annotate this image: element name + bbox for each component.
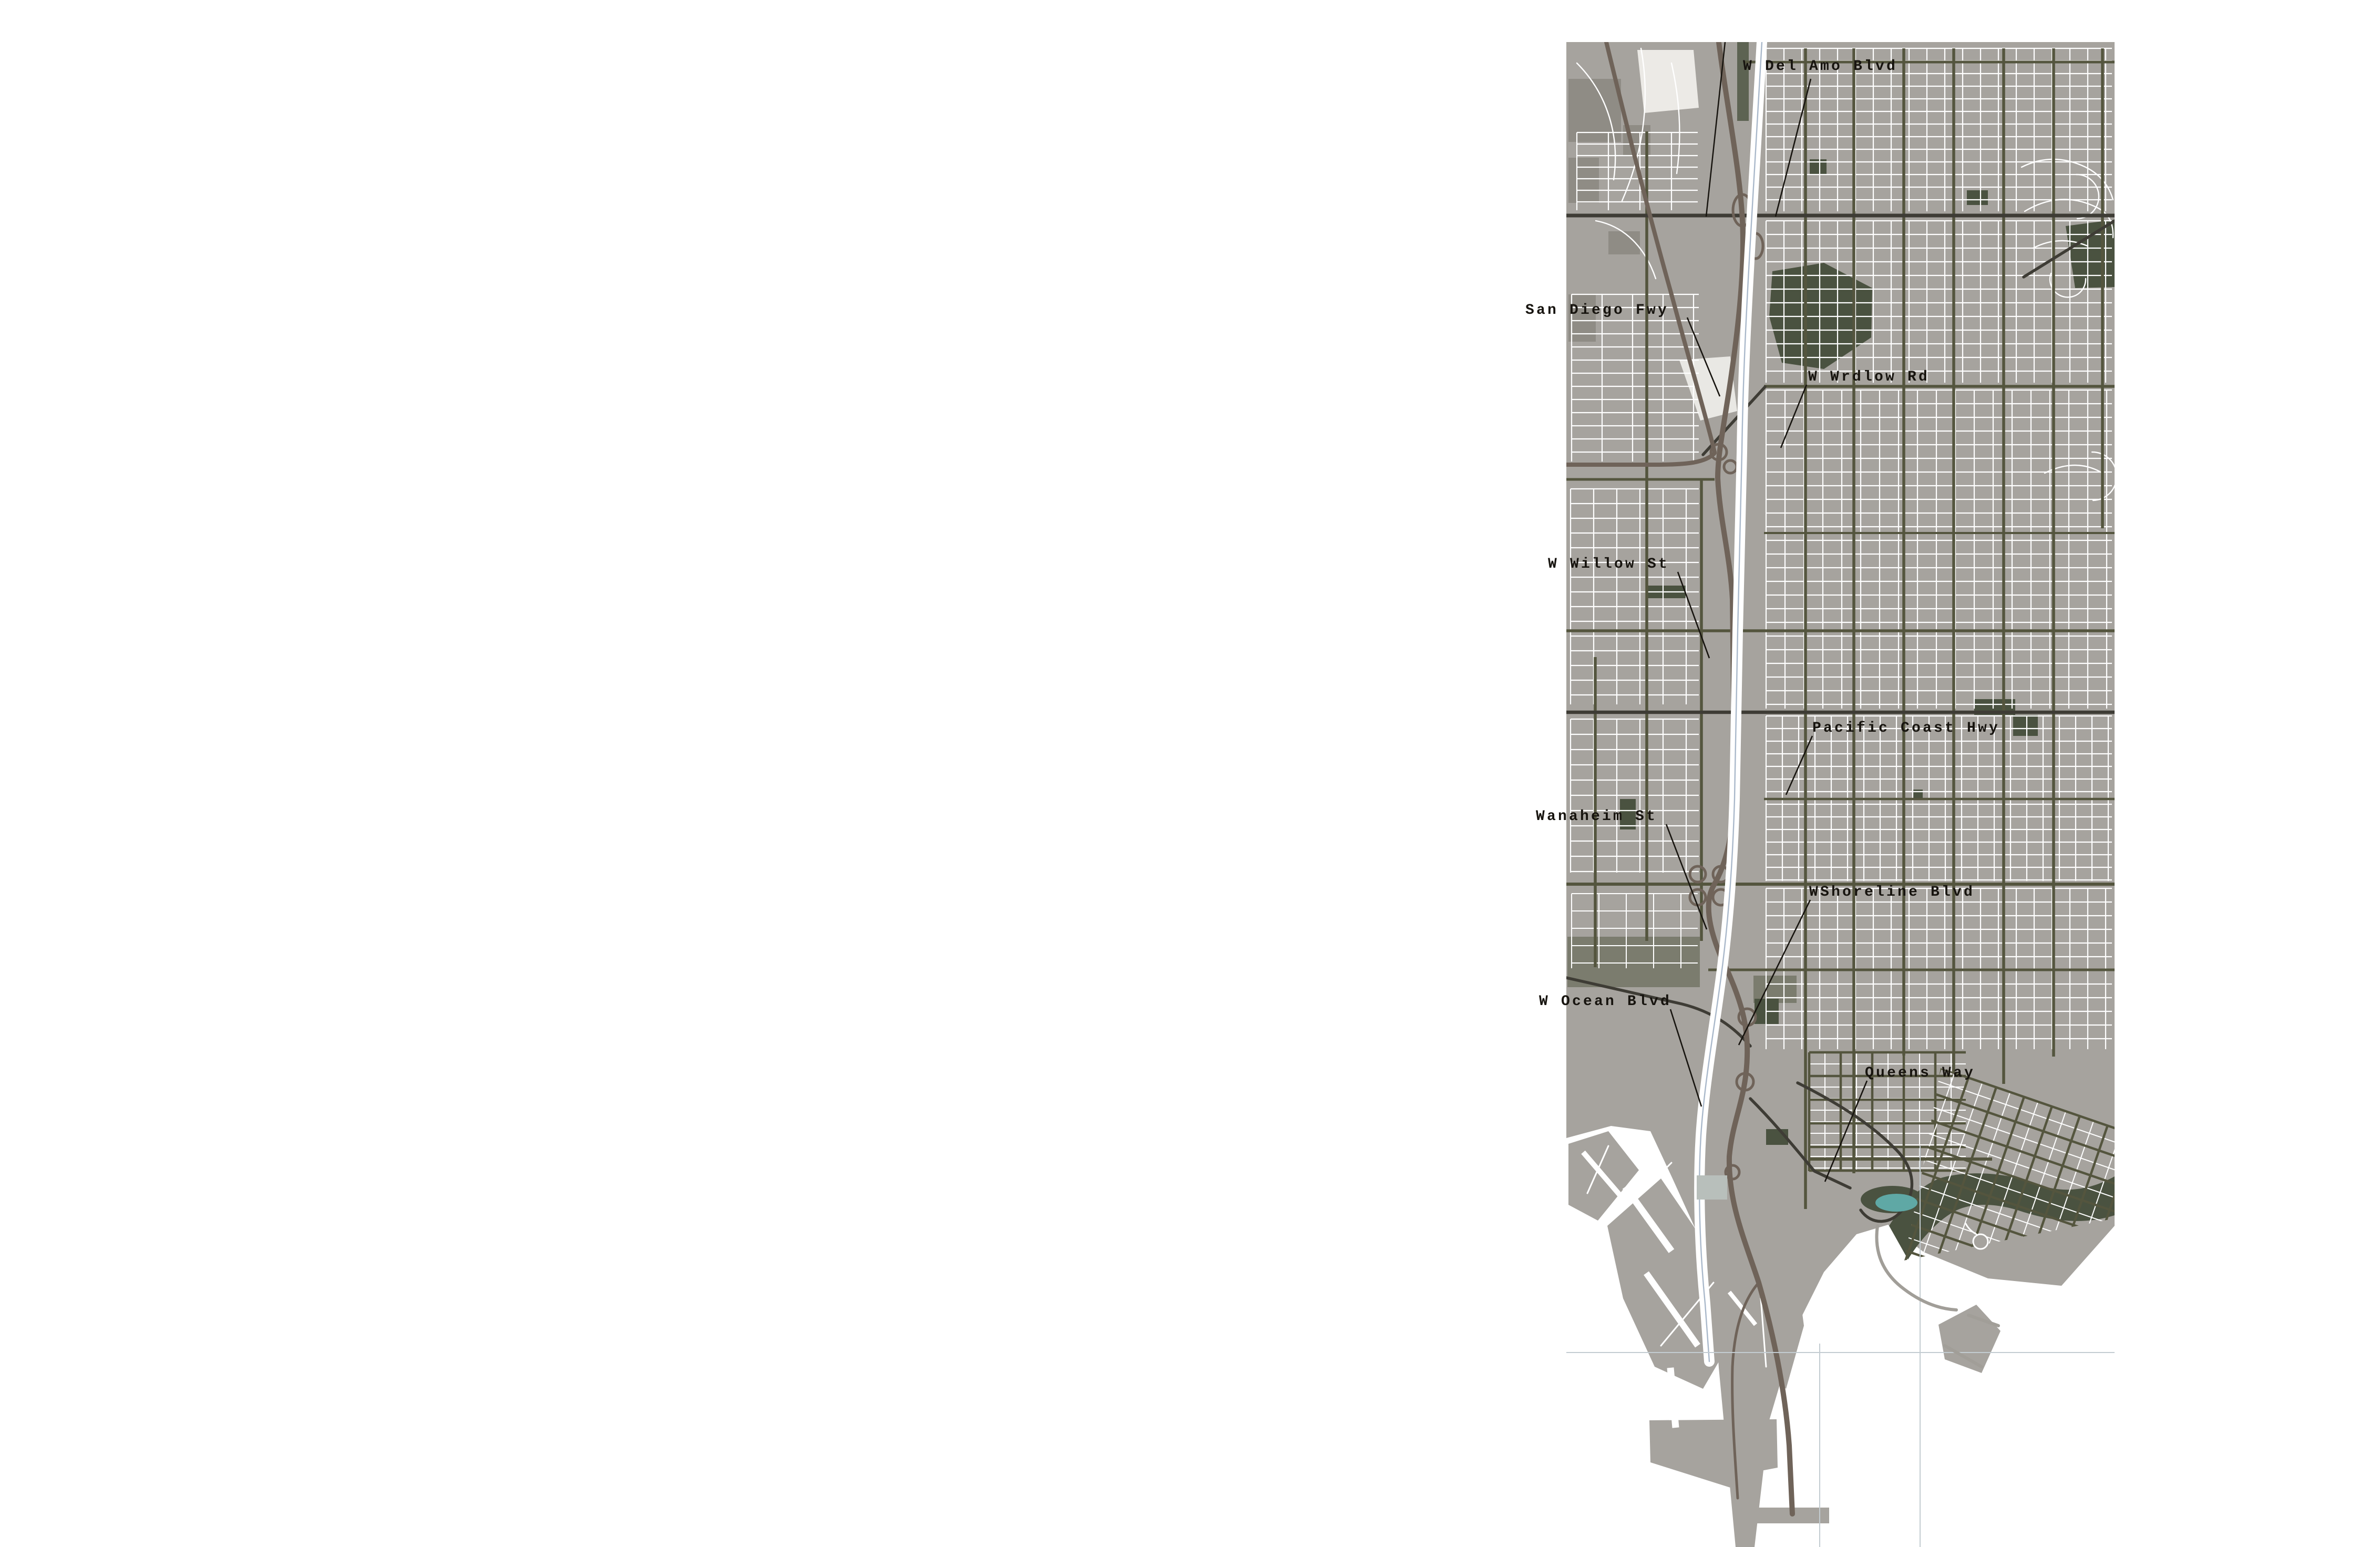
map-body	[1566, 42, 2198, 1547]
street-label: W Del Amo Blvd	[1743, 58, 1897, 75]
page: San Diego FwyW Del Amo BlvdW Wrdlow RdW …	[0, 0, 2380, 1547]
street-label: W Willow St	[1548, 556, 1669, 572]
street-label: Queens Way	[1865, 1065, 1975, 1081]
street-label: San Diego Fwy	[1525, 302, 1669, 319]
street-label: Wanaheim St	[1536, 808, 1657, 825]
city-map: San Diego FwyW Del Amo BlvdW Wrdlow RdW …	[0, 0, 2380, 1547]
street-label: WShoreline Blvd	[1809, 884, 1975, 900]
street-label: W Wrdlow Rd	[1808, 369, 1930, 385]
street-label: Pacific Coast Hwy	[1812, 720, 2000, 736]
street-label: W Ocean Blvd	[1539, 993, 1671, 1010]
